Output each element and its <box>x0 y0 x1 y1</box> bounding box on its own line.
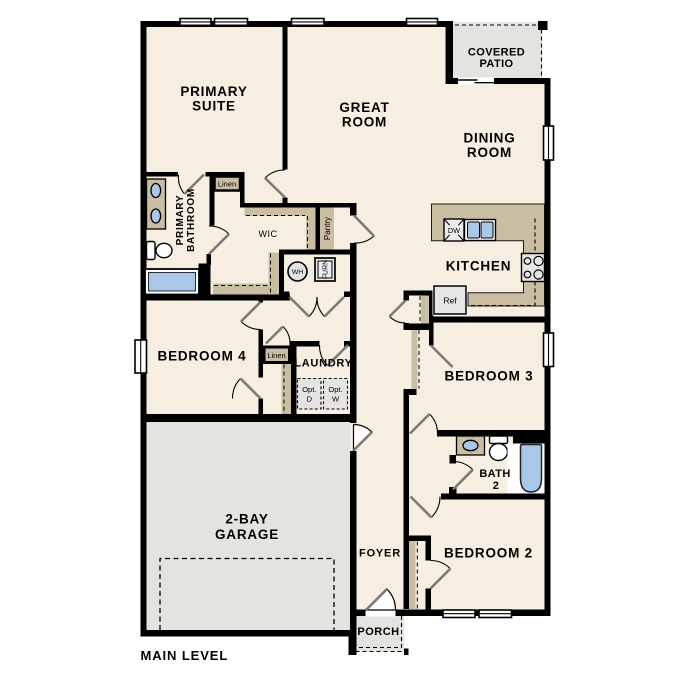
svg-text:FURN: FURN <box>323 260 330 279</box>
svg-text:D: D <box>307 395 313 404</box>
svg-text:Linen: Linen <box>218 180 236 189</box>
svg-text:BEDROOM 4: BEDROOM 4 <box>158 349 247 364</box>
svg-text:Ref: Ref <box>443 296 457 306</box>
svg-text:BEDROOM 2: BEDROOM 2 <box>444 546 533 561</box>
svg-text:GREAT: GREAT <box>339 100 389 115</box>
svg-text:ROOM: ROOM <box>342 115 387 130</box>
svg-text:WH: WH <box>292 269 303 276</box>
svg-text:LAUNDRY: LAUNDRY <box>294 358 352 370</box>
svg-text:PRIMARY: PRIMARY <box>175 195 186 246</box>
svg-text:PORCH: PORCH <box>357 626 399 638</box>
svg-text:KITCHEN: KITCHEN <box>446 259 512 274</box>
svg-text:WIC: WIC <box>259 229 278 239</box>
svg-text:SUITE: SUITE <box>192 99 236 114</box>
svg-text:W: W <box>332 395 340 404</box>
svg-text:BEDROOM 3: BEDROOM 3 <box>445 369 534 384</box>
svg-text:Opt.: Opt. <box>328 385 342 394</box>
svg-text:Pantry: Pantry <box>323 217 332 240</box>
svg-text:BATH: BATH <box>479 468 510 480</box>
svg-text:COVERED: COVERED <box>468 47 525 59</box>
svg-text:Linen: Linen <box>267 351 285 360</box>
svg-text:MAIN LEVEL: MAIN LEVEL <box>141 648 229 663</box>
svg-text:FOYER: FOYER <box>359 548 401 560</box>
svg-text:Opt.: Opt. <box>302 385 316 394</box>
svg-text:GARAGE: GARAGE <box>215 527 279 542</box>
svg-text:ROOM: ROOM <box>467 145 512 160</box>
svg-text:2: 2 <box>493 480 500 492</box>
svg-text:PRIMARY: PRIMARY <box>180 84 247 99</box>
svg-text:DINING: DINING <box>463 131 515 146</box>
svg-text:PATIO: PATIO <box>480 58 514 70</box>
svg-text:BATHROOM: BATHROOM <box>186 188 197 252</box>
svg-text:DW: DW <box>448 226 460 235</box>
svg-text:2-BAY: 2-BAY <box>225 512 268 527</box>
